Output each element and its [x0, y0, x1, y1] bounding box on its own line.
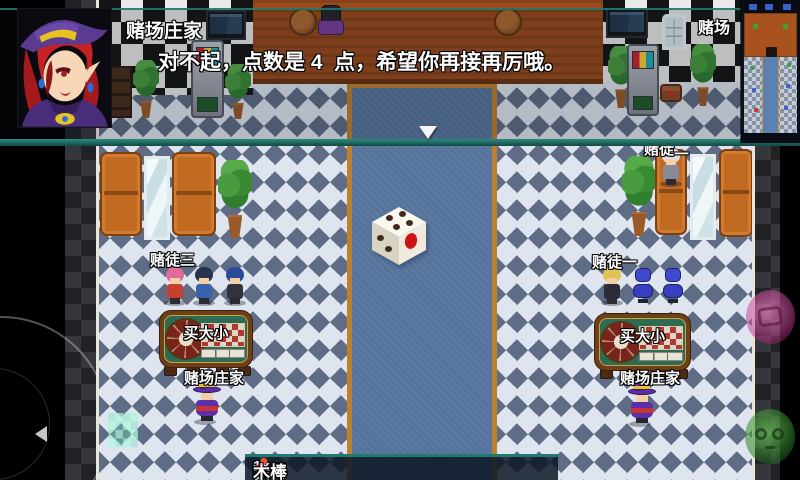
dice-pip	[386, 215, 393, 221]
office-chair	[633, 268, 653, 306]
npc-face	[636, 395, 648, 402]
npc-face	[201, 393, 213, 400]
sofa	[172, 152, 216, 236]
potted-plant	[218, 160, 252, 238]
action-button-pink[interactable]	[746, 290, 795, 344]
sofa-seam	[723, 190, 749, 194]
dialogue-bottom-border	[0, 139, 800, 146]
sofa	[719, 149, 753, 237]
sofa	[100, 152, 142, 236]
standing-mirror	[690, 154, 716, 240]
dealer-name-label: 赌场庄家	[184, 367, 244, 388]
dealer-name-label: 赌场庄家	[620, 367, 680, 388]
sofa-seam	[659, 189, 683, 193]
chair-base	[638, 299, 648, 303]
npc-legs	[230, 298, 240, 304]
dice-pip	[393, 224, 400, 230]
dialogue-speaker-name: 赌场庄家	[126, 16, 202, 43]
table-sign: 买大小	[160, 322, 252, 343]
minimap-marker	[765, 4, 773, 10]
mouth-icon	[765, 446, 775, 449]
plant-leaves	[622, 156, 656, 214]
npc-body	[604, 284, 620, 299]
table-sign: 买大小	[595, 325, 690, 346]
chair-seat	[663, 284, 683, 298]
dealer-sash	[196, 406, 218, 411]
office-chair	[663, 268, 683, 306]
npc-legs	[636, 418, 648, 423]
sofa-seam	[176, 191, 212, 195]
minimap-marker	[752, 88, 756, 92]
npc-body	[663, 165, 679, 180]
minimap-doorway	[766, 47, 777, 57]
potted-plant	[622, 156, 656, 236]
dice-pip	[399, 211, 406, 217]
continue-indicator-icon	[419, 126, 437, 139]
betting-row	[201, 349, 245, 358]
pink-button-glyph	[757, 305, 783, 327]
virtual-joystick[interactable]	[0, 0, 97, 480]
sofa-seam	[104, 191, 138, 195]
minimap-marker	[783, 24, 788, 29]
touch-highlight-tile	[108, 413, 138, 447]
npc-body	[167, 284, 183, 299]
emote-button-green[interactable]	[745, 409, 795, 464]
standing-mirror	[144, 156, 170, 240]
npc-body	[227, 284, 243, 299]
glasses-eye-icon	[755, 428, 767, 440]
minimap	[741, 0, 800, 143]
plant-leaves	[218, 160, 252, 216]
npc-name-label: 赌徒一	[592, 251, 637, 272]
npc-gambler-goggles	[223, 266, 247, 306]
plant-pot	[632, 212, 647, 236]
loot-notification: 获得 1x 木棒 获得 1x 木棒	[245, 454, 558, 480]
npc-gambler-blonde	[600, 266, 624, 306]
plant-pot	[228, 215, 243, 238]
npc-legs	[201, 416, 213, 421]
highlight-pattern	[108, 413, 138, 447]
betting-row	[639, 352, 683, 361]
npc-body	[196, 284, 212, 299]
npc-name-label: 赌徒三	[150, 249, 195, 270]
glasses-eye-icon	[772, 428, 784, 440]
chair-base	[668, 299, 678, 303]
chair-back	[635, 268, 651, 282]
sic-bo-table-right: 买大小	[594, 313, 691, 371]
minimap-marker	[749, 4, 757, 10]
npc-legs	[607, 298, 617, 304]
minimap-marker	[784, 106, 788, 110]
sic-bo-table-left: 买大小	[159, 310, 253, 368]
area-name-label: 赌场	[698, 14, 730, 38]
joystick-left-arrow-icon[interactable]	[35, 426, 47, 442]
dialogue-text: 对不起，点数是 4 点，希望你再接再厉哦。	[158, 46, 565, 76]
dice-pip	[377, 235, 384, 241]
loot-item-name: 木棒	[253, 458, 287, 480]
npc-legs	[170, 298, 180, 304]
dice	[372, 207, 426, 265]
minimap-marker	[786, 84, 790, 88]
dealer-sash	[631, 408, 653, 413]
minimap-marker	[787, 63, 791, 67]
npc-gambler-pink	[163, 266, 187, 306]
minimap-bottom-band	[741, 133, 800, 143]
npc-legs	[666, 179, 676, 185]
minimap-marker	[753, 24, 758, 29]
dice-pip	[406, 220, 413, 226]
minimap-marker	[750, 66, 754, 70]
minimap-carpet	[762, 57, 779, 133]
npc-legs	[199, 298, 209, 304]
chair-back	[665, 268, 681, 282]
minimap-marker	[754, 108, 758, 112]
minimap-marker	[783, 4, 791, 10]
npc-gambler-navy	[192, 266, 216, 306]
dice-pip	[385, 246, 392, 252]
chair-seat	[633, 284, 653, 298]
game-screen: 赌徒二 赌徒三 赌徒一 买大小 买大小 赌场庄家 赌场庄家	[0, 0, 800, 480]
